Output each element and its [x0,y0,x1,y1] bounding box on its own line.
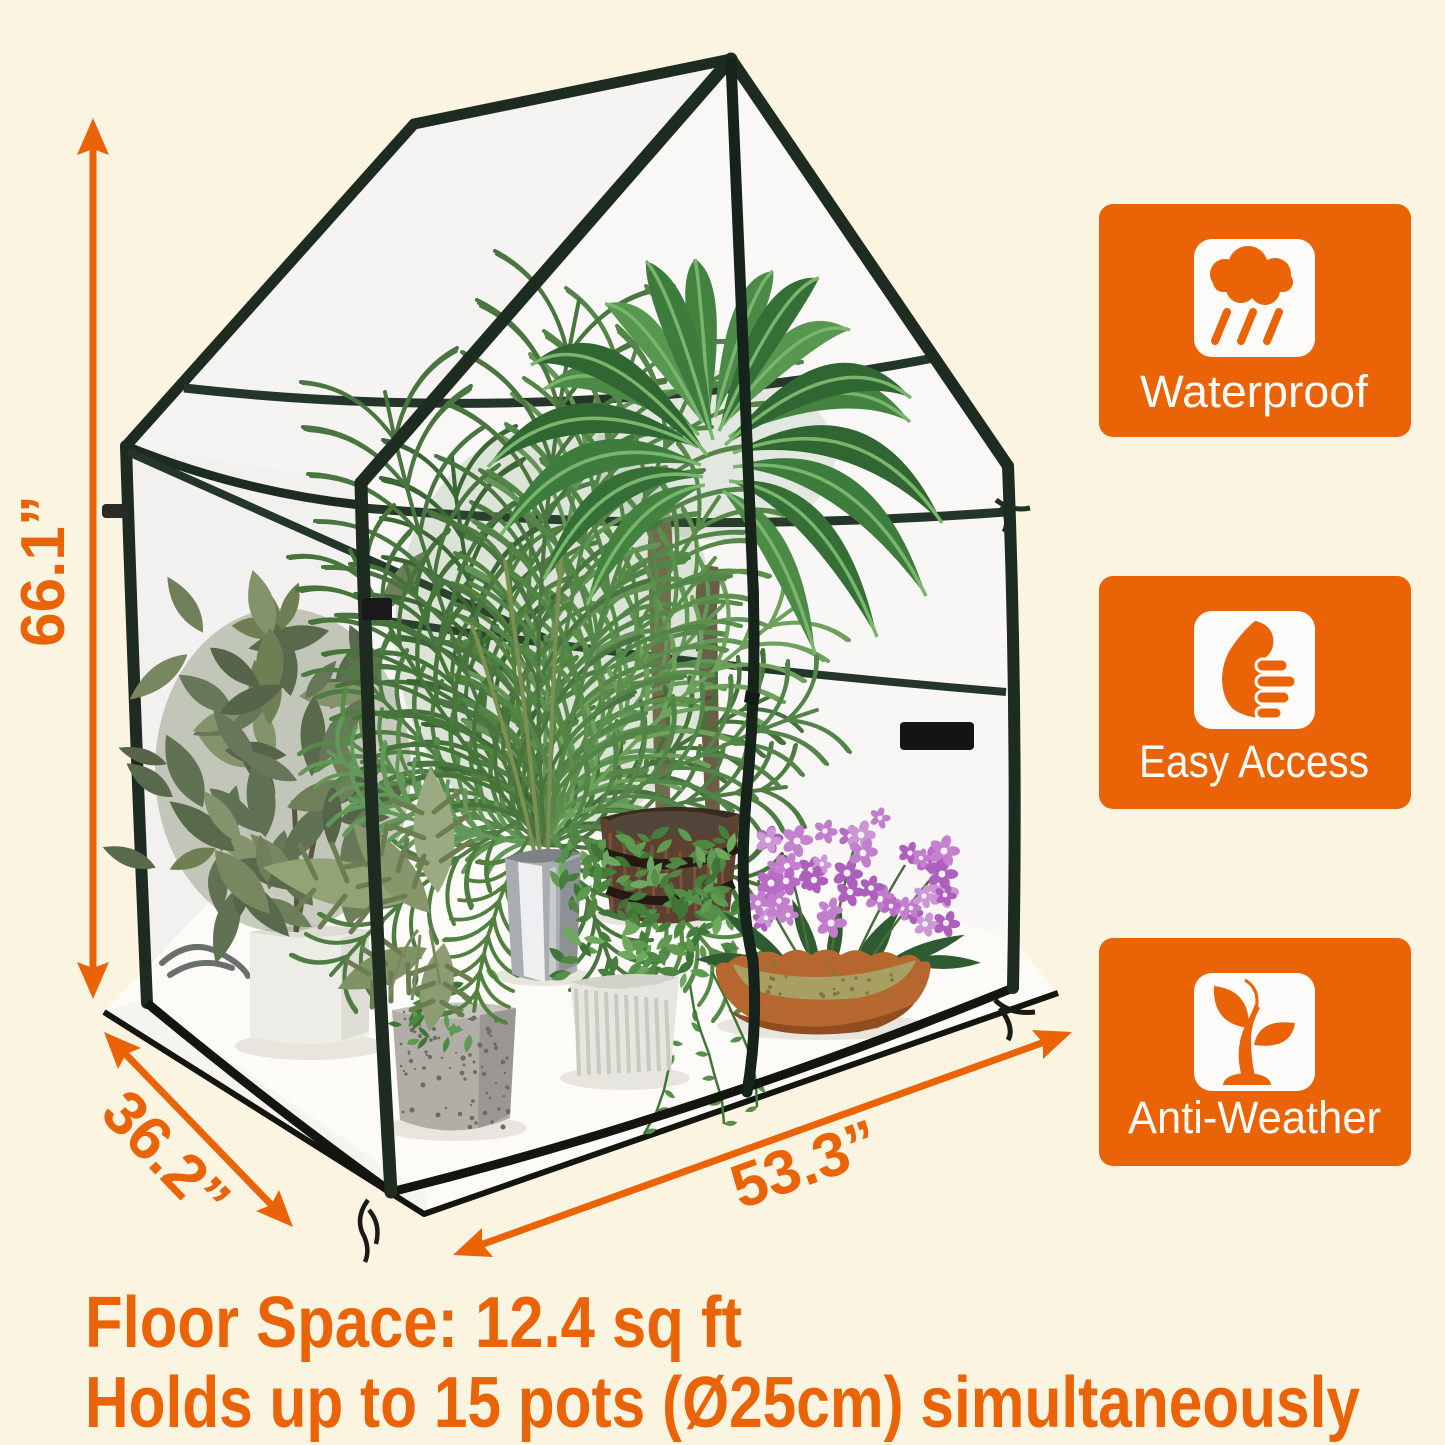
svg-text:Holds up to 15 pots (Ø25cm) si: Holds up to 15 pots (Ø25cm) simultaneous… [85,1363,1360,1443]
svg-text:Waterproof: Waterproof [1140,366,1369,417]
svg-text:Anti-Weather: Anti-Weather [1128,1092,1381,1143]
svg-text:66.1”: 66.1” [9,495,78,647]
svg-text:Floor Space: 12.4 sq ft: Floor Space: 12.4 sq ft [85,1283,742,1363]
svg-text:Easy Access: Easy Access [1139,736,1369,787]
